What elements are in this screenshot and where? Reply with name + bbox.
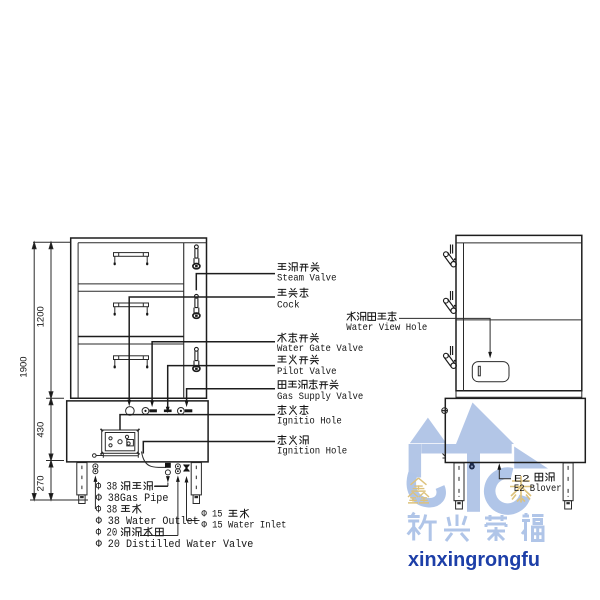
svg-text:Φ 20 Distilled Water Valve: Φ 20 Distilled Water Valve (96, 539, 254, 551)
svg-text:Φ 38 Water Outlet: Φ 38 Water Outlet (96, 516, 199, 528)
svg-text:Φ 38: Φ 38 (96, 504, 118, 516)
svg-text:xinxingrongfu: xinxingrongfu (408, 548, 540, 571)
svg-text:E2 Blover: E2 Blover (514, 483, 562, 495)
svg-text:Water Gate Valve: Water Gate Valve (277, 343, 363, 355)
svg-text:Φ 38: Φ 38 (96, 481, 118, 493)
svg-text:Φ 38Gas Pipe: Φ 38Gas Pipe (96, 493, 169, 505)
svg-text:270: 270 (36, 475, 47, 491)
svg-text:1900: 1900 (19, 356, 30, 377)
svg-text:430: 430 (36, 422, 47, 438)
svg-text:Pilot Valve: Pilot Valve (277, 366, 337, 378)
svg-text:Φ 20: Φ 20 (96, 527, 118, 539)
svg-text:Cock: Cock (277, 299, 300, 311)
svg-text:Ignition Hole: Ignition Hole (277, 446, 347, 458)
svg-text:Steam Valve: Steam Valve (277, 273, 337, 285)
svg-text:Gas Supply Valve: Gas Supply Valve (277, 391, 363, 403)
svg-text:Φ 15 Water Inlet: Φ 15 Water Inlet (202, 519, 287, 531)
svg-text:Ignitio Hole: Ignitio Hole (277, 416, 342, 428)
svg-text:1200: 1200 (36, 306, 47, 327)
svg-text:Water View Hole: Water View Hole (346, 322, 427, 334)
